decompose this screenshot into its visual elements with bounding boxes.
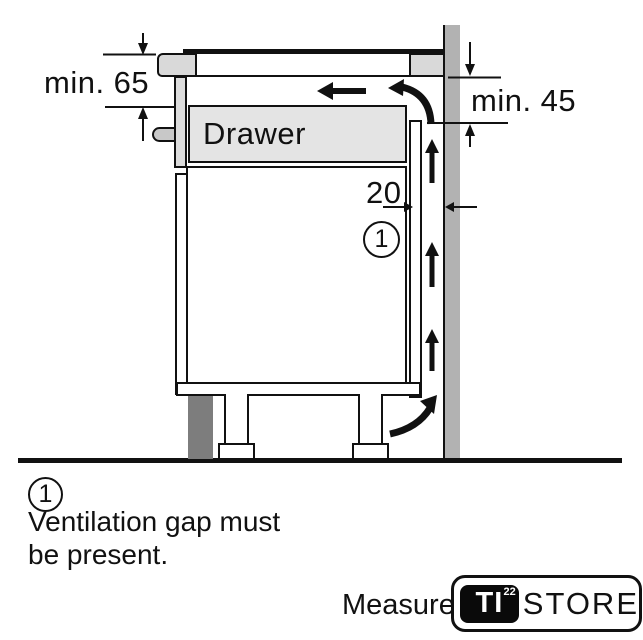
- store-logo-text: STORE: [523, 586, 639, 622]
- arrows-overlay: [0, 0, 643, 640]
- dimension-gap-20: [383, 202, 477, 212]
- installation-diagram: Drawer: [0, 0, 643, 640]
- airflow-arrow-top-curve: [388, 79, 431, 124]
- airflow-arrows-gap: [425, 139, 439, 371]
- ti-store-logo: TI 22 STORE: [451, 575, 642, 632]
- dimension-min-45: [427, 42, 508, 147]
- dimension-min-65: [103, 33, 174, 141]
- ti-logo-text: TI: [475, 587, 503, 620]
- airflow-arrow-left: [317, 82, 366, 100]
- measure-text: Measure: [342, 589, 455, 622]
- ti-logo-superscript: 22: [504, 586, 516, 598]
- airflow-arrow-bottom-curve: [390, 395, 437, 434]
- ti-logo-block: TI 22: [460, 585, 519, 623]
